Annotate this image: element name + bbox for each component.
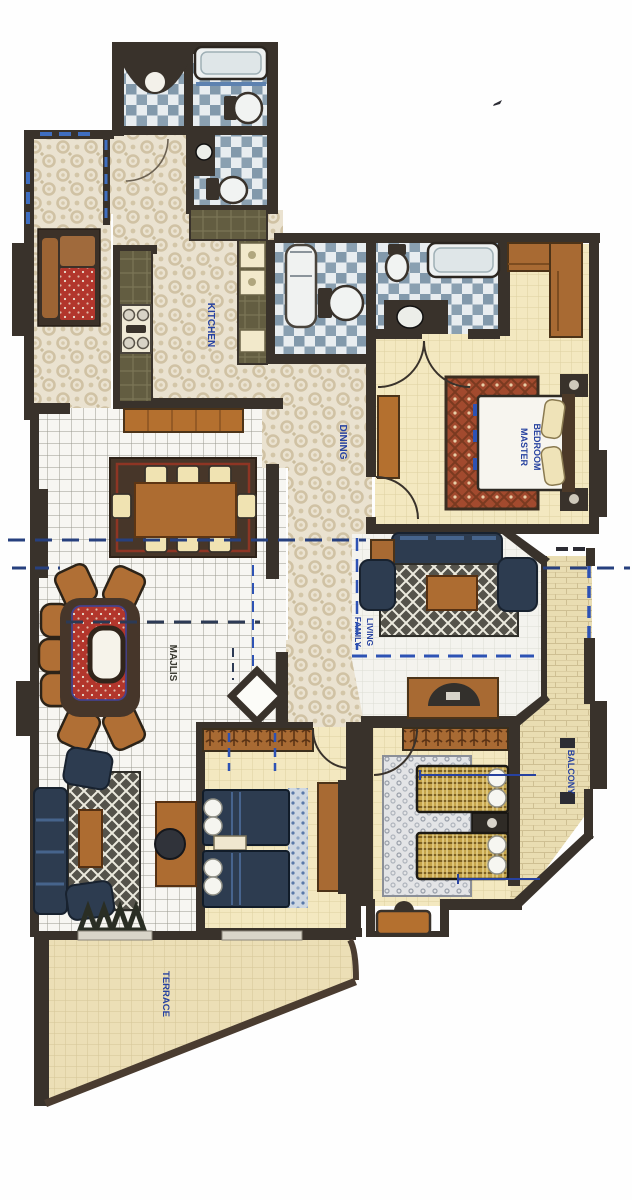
svg-text:TERRACE: TERRACE: [160, 971, 171, 1017]
svg-text:MASTER: MASTER: [519, 428, 529, 467]
svg-text:BALCONY: BALCONY: [566, 750, 576, 795]
svg-text:KITCHEN: KITCHEN: [205, 303, 216, 347]
svg-text:MAJLIS: MAJLIS: [167, 645, 178, 682]
svg-text:LIVING: LIVING: [365, 618, 375, 647]
svg-text:DINING: DINING: [337, 425, 348, 460]
svg-text:BEDROOM: BEDROOM: [532, 424, 542, 471]
